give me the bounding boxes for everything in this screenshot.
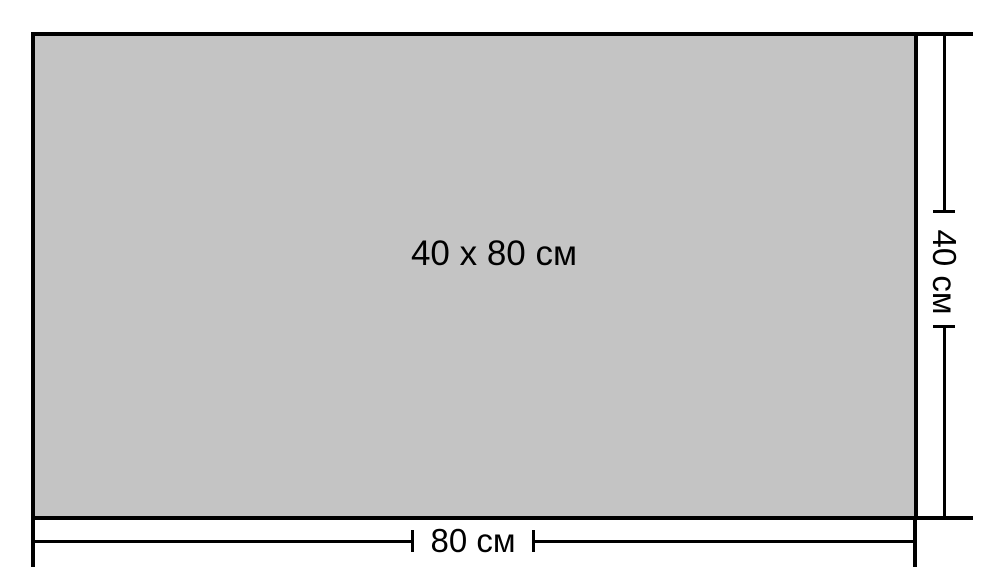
extension-line-right-down bbox=[913, 520, 917, 567]
width-dimension-line-right bbox=[533, 540, 916, 543]
height-dimension-line-lower bbox=[943, 327, 946, 518]
width-dimension-label: 80 см bbox=[430, 522, 515, 560]
size-label: 40 x 80 см bbox=[411, 234, 577, 274]
height-dimension-label: 40 см bbox=[925, 229, 963, 314]
width-dimension-tick-left bbox=[411, 530, 414, 552]
width-dimension-tick-right bbox=[532, 530, 535, 552]
width-dimension-line-left bbox=[34, 540, 412, 543]
object-rectangle: 40 x 80 см bbox=[31, 32, 918, 520]
height-dimension-tick-lower bbox=[933, 325, 955, 328]
height-dimension-tick-upper bbox=[933, 210, 955, 213]
dimension-diagram: 40 x 80 см 40 см 80 см bbox=[0, 0, 1000, 582]
extension-line-left-down bbox=[31, 520, 35, 567]
height-dimension-line-upper bbox=[943, 34, 946, 212]
